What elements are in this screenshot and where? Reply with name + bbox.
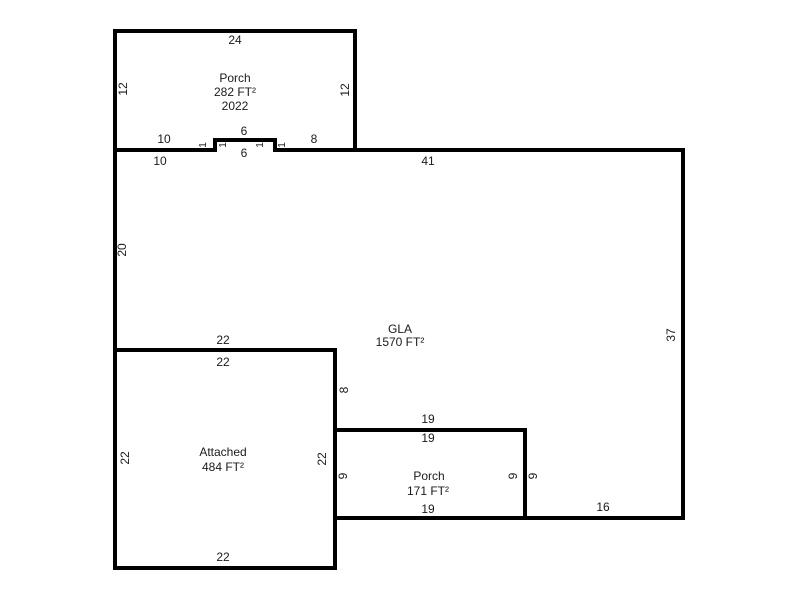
dim-porch-top-height-right: 12	[339, 83, 351, 96]
dim-gla-notch-bottom: 6	[241, 147, 248, 159]
dim-gla-left-height: 20	[116, 243, 128, 256]
dim-porch-bottom-width-bottom: 19	[421, 503, 434, 515]
dim-attached-width-top: 22	[216, 356, 229, 368]
dim-gla-notch-step-height: 8	[338, 387, 350, 394]
dim-porch-top-bottom-right-seg: 8	[311, 133, 318, 145]
porch-bottom-title: Porch	[413, 470, 444, 482]
attached-area: 484 FT²	[202, 461, 244, 473]
porch-top-year: 2022	[222, 100, 249, 112]
dim-porch-bottom-height-left: 9	[337, 473, 349, 480]
dim-gla-porch-top-width: 19	[421, 413, 434, 425]
dim-porch-top-width: 24	[228, 34, 241, 46]
dim-notch-step-right-outer: 1	[278, 142, 288, 148]
dim-notch-step-right-inner: 1	[256, 142, 266, 148]
dim-gla-bottom-right-seg: 16	[596, 501, 609, 513]
dim-porch-top-height-left: 12	[117, 82, 129, 95]
gla-title: GLA	[388, 323, 412, 335]
attached-garage-outline	[115, 350, 335, 568]
dim-gla-top-left-seg: 10	[153, 155, 166, 167]
dim-attached-height-left: 22	[119, 451, 131, 464]
dim-attached-width-bottom: 22	[216, 551, 229, 563]
porch-top-title: Porch	[219, 72, 250, 84]
dim-porch-bottom-height-right: 9	[507, 473, 519, 480]
dim-gla-right-height: 37	[665, 328, 677, 341]
dim-gla-top-right-seg: 41	[421, 155, 434, 167]
gla-area: 1570 FT²	[376, 336, 425, 348]
porch-top-area: 282 FT²	[214, 86, 256, 98]
dim-porch-top-bottom-left-seg: 10	[157, 133, 170, 145]
attached-title: Attached	[199, 446, 246, 458]
dim-porch-bottom-width-top: 19	[421, 432, 434, 444]
dim-attached-height-right: 22	[316, 452, 328, 465]
dim-notch-step-left-outer: 1	[199, 142, 209, 148]
dim-gla-porch-right-height: 9	[527, 473, 539, 480]
dim-gla-attached-top-width: 22	[216, 334, 229, 346]
porch-bottom-area: 171 FT²	[407, 485, 449, 497]
dim-notch-step-left-inner: 1	[219, 142, 229, 148]
floor-plan-sketch: 24 12 12 Porch 282 FT² 2022 10 6 8 1 1 1…	[0, 0, 800, 600]
dim-porch-top-notch-top: 6	[241, 125, 248, 137]
